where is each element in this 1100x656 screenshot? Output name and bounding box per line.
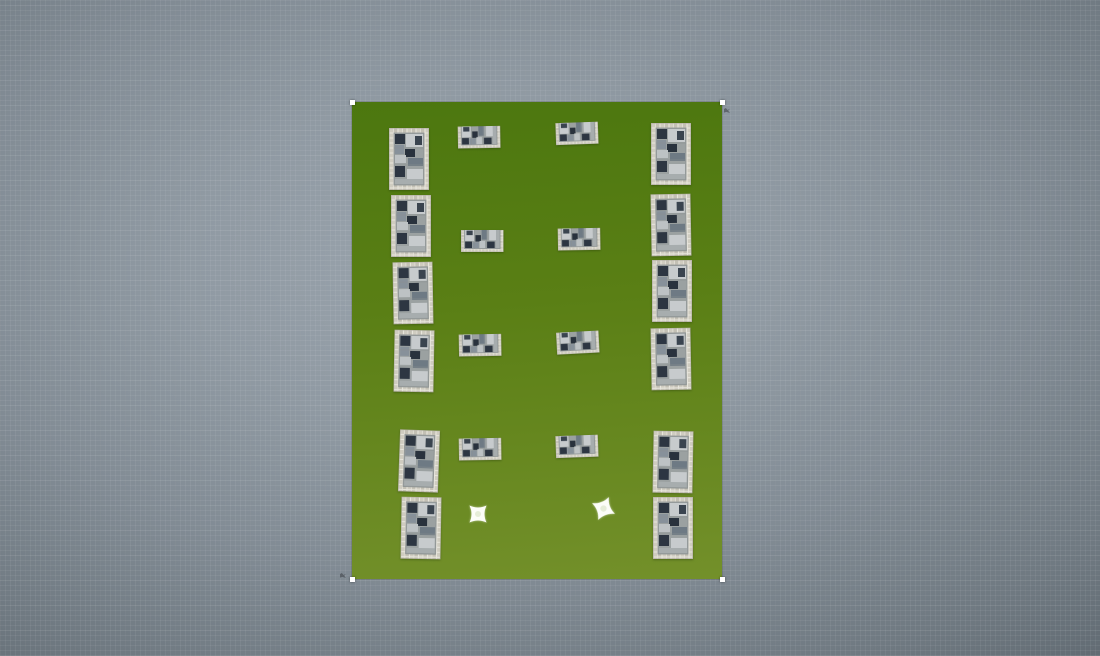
- building-sprite-right-2[interactable]: [650, 194, 691, 257]
- building-sprite-left-3[interactable]: [392, 262, 433, 325]
- building-sprite-left-2[interactable]: [391, 195, 431, 257]
- building-sprite-mid-left-1[interactable]: [458, 125, 525, 166]
- building-sprite-mid-right-1[interactable]: [555, 121, 622, 163]
- building-sprite-mid-left-3[interactable]: [459, 333, 526, 374]
- selection-handle-top-left[interactable]: [350, 100, 355, 105]
- building-sprite-right-1[interactable]: [651, 123, 691, 185]
- building-sprite-right-4[interactable]: [650, 328, 691, 391]
- corner-smudge-2: [340, 573, 346, 578]
- selection-handle-bottom-left[interactable]: [350, 577, 355, 582]
- building-sprite-left-5[interactable]: [398, 429, 440, 492]
- building-sprite-right-5[interactable]: [652, 431, 693, 494]
- building-sprite-left-1[interactable]: [389, 128, 429, 190]
- map-canvas: [0, 0, 1100, 656]
- selection-handle-bottom-right[interactable]: [720, 577, 725, 582]
- selection-handle-top-right[interactable]: [720, 100, 725, 105]
- building-sprite-mid-right-3[interactable]: [556, 329, 624, 372]
- building-sprite-mid-left-4[interactable]: [459, 437, 526, 478]
- building-sprite-right-3[interactable]: [652, 260, 692, 322]
- building-sprite-mid-left-2[interactable]: [461, 230, 527, 270]
- corner-smudge-1: [724, 108, 730, 113]
- building-sprite-mid-right-2[interactable]: [558, 227, 625, 268]
- building-sprite-mid-right-4[interactable]: [555, 434, 622, 476]
- sparkle-1-icon[interactable]: [468, 504, 488, 524]
- building-sprite-right-6[interactable]: [653, 497, 693, 559]
- building-sprite-left-6[interactable]: [400, 497, 441, 560]
- building-sprite-left-4[interactable]: [393, 330, 434, 393]
